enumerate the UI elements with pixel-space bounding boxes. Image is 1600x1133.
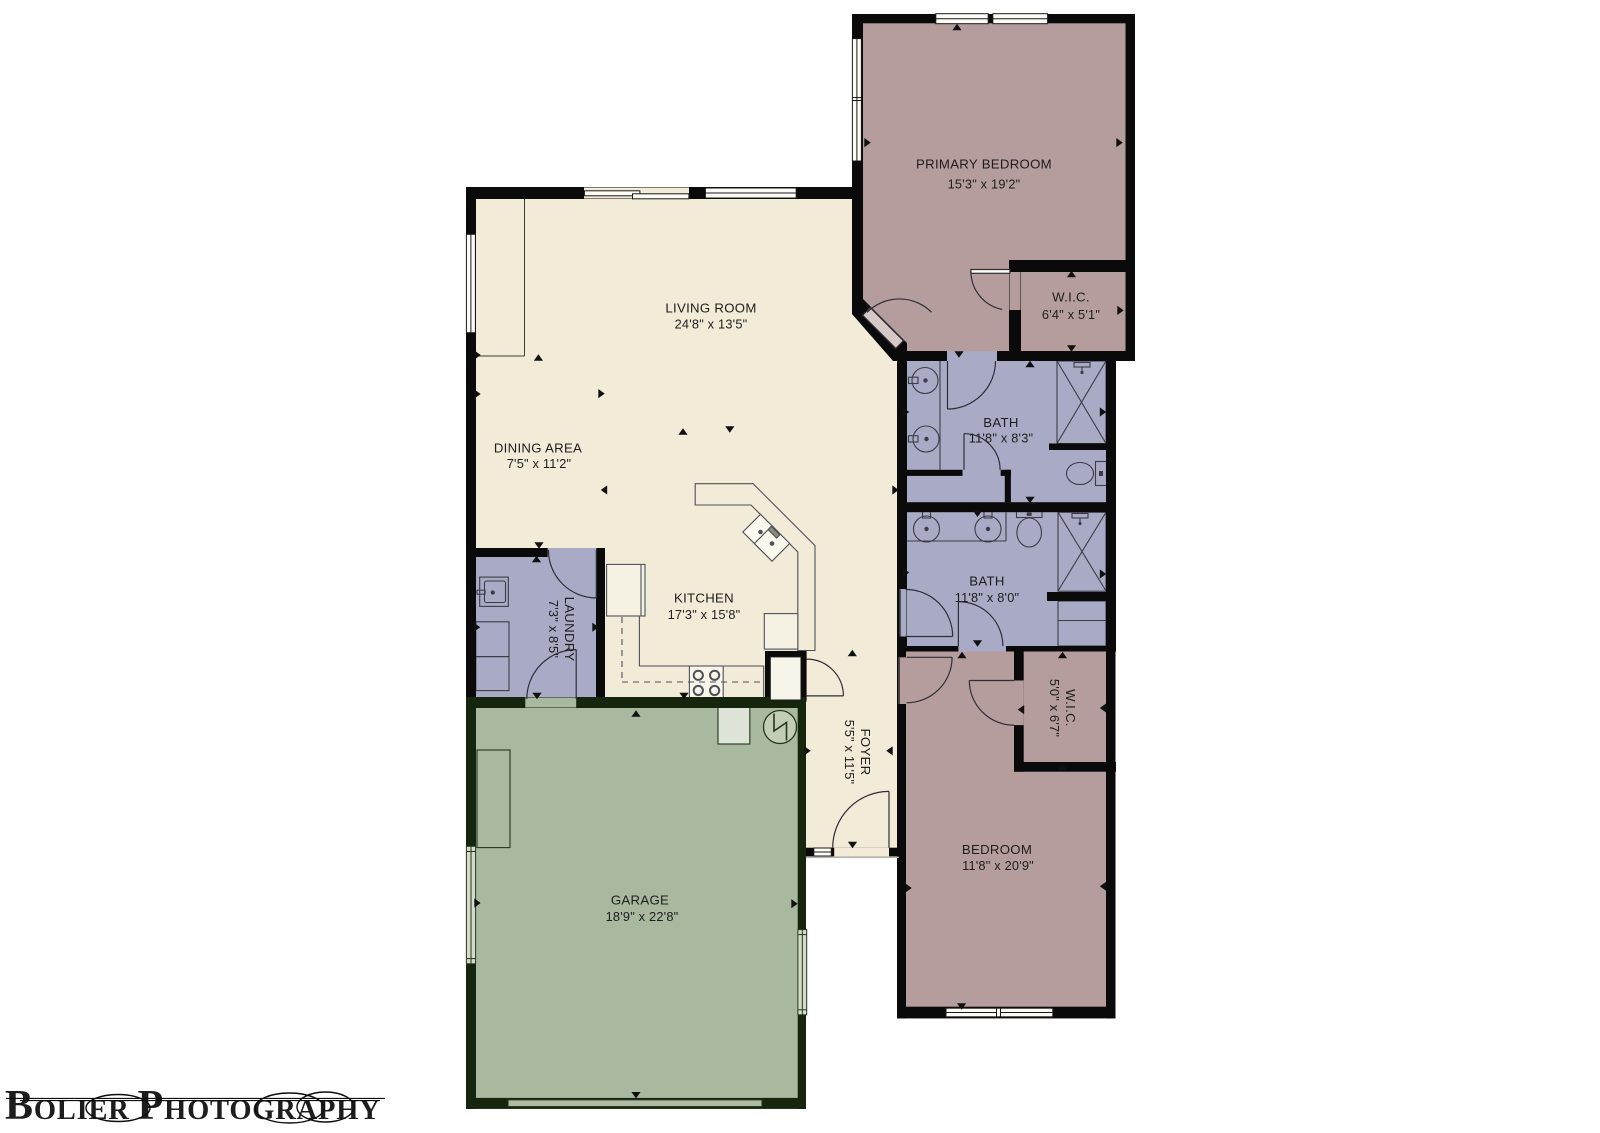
svg-text:BATH: BATH [983,415,1018,430]
svg-text:KITCHEN: KITCHEN [674,591,734,606]
svg-text:11'8" x 8'0": 11'8" x 8'0" [955,590,1020,605]
svg-text:5'5" x 11'5": 5'5" x 11'5" [842,720,857,785]
svg-text:7'5" x 11'2": 7'5" x 11'2" [507,456,572,471]
svg-text:11'8" x 20'9": 11'8" x 20'9" [962,858,1034,873]
svg-text:5'0" x 6'7": 5'0" x 6'7" [1047,679,1062,737]
svg-text:17'3" x 15'8": 17'3" x 15'8" [668,607,741,622]
svg-text:7'3" x 8'5": 7'3" x 8'5" [546,600,561,658]
svg-text:BEDROOM: BEDROOM [962,842,1032,857]
svg-text:W.I.C.: W.I.C. [1063,689,1078,727]
svg-text:DINING AREA: DINING AREA [494,441,582,456]
svg-text:24'8" x 13'5": 24'8" x 13'5" [675,317,748,332]
svg-text:18'9" x 22'8": 18'9" x 22'8" [606,909,679,924]
svg-text:LIVING ROOM: LIVING ROOM [665,301,756,316]
svg-text:BATH: BATH [969,574,1004,589]
svg-text:15'3" x 19'2": 15'3" x 19'2" [948,177,1021,192]
svg-text:6'4" x 5'1": 6'4" x 5'1" [1042,307,1100,322]
svg-text:11'8" x 8'3": 11'8" x 8'3" [969,431,1034,446]
svg-text:PRIMARY BEDROOM: PRIMARY BEDROOM [916,157,1052,172]
svg-text:LAUNDRY: LAUNDRY [562,597,577,662]
svg-text:FOYER: FOYER [858,729,873,776]
svg-text:GARAGE: GARAGE [611,893,669,908]
svg-text:W.I.C.: W.I.C. [1052,290,1090,305]
